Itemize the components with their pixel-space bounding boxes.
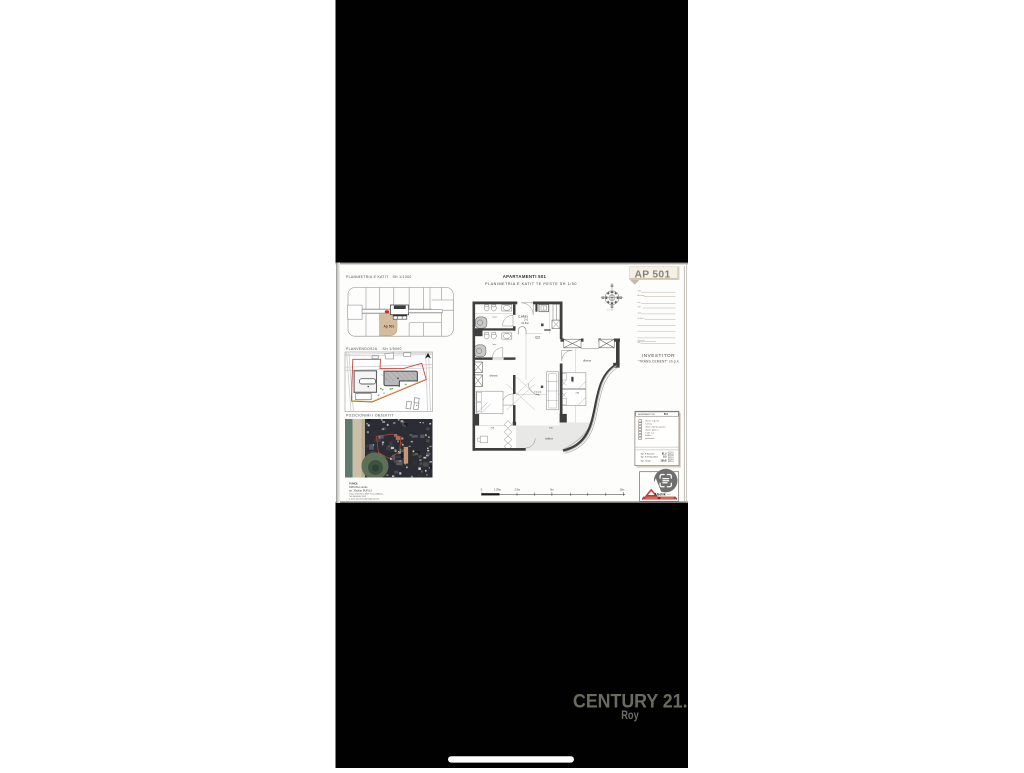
svg-text:PLANIMETRIA E KATIT TE PESTE: PLANIMETRIA E KATIT TE PESTE SH 1/50 <box>485 282 577 286</box>
svg-text:dhome ndenje+ngrenie: dhome ndenje+ngrenie <box>645 427 666 429</box>
svg-text:dhome e gjumit: dhome e gjumit <box>645 420 659 423</box>
svg-text:dhoma: dhoma <box>490 373 498 377</box>
svg-text:APARTAMENTI 501: APARTAMENTI 501 <box>503 274 547 279</box>
svg-text:Akronte:: Akronte: <box>638 294 646 297</box>
svg-text:PLANIMETRIA E KATIT SH 1/100: PLANIMETRIA E KATIT SH 1/1000 <box>346 275 412 279</box>
svg-text:ant:: ant: <box>638 341 642 344</box>
svg-text:2.5m: 2.5m <box>515 488 521 491</box>
svg-text:m2: m2 <box>669 460 671 462</box>
svg-text:PUNOI:: PUNOI: <box>349 482 358 486</box>
svg-text:5m: 5m <box>550 488 553 491</box>
svg-text:mbi:: mbi: <box>638 307 642 309</box>
svg-text:tualet 1+2: tualet 1+2 <box>645 431 655 434</box>
svg-text:Obj:: Obj: <box>638 291 642 293</box>
svg-text:Roy: Roy <box>621 710 639 722</box>
svg-text:91.5m²: 91.5m² <box>522 322 530 325</box>
svg-text:INVESTITOR: INVESTITOR <box>642 353 675 358</box>
svg-text:disp: disp <box>536 394 539 396</box>
svg-text:m2: m2 <box>669 456 671 458</box>
svg-text:garderobe: garderobe <box>645 438 655 440</box>
svg-text:arkit:: arkit: <box>638 311 643 314</box>
svg-text:Sip. E Perbashket: Sip. E Perbashket <box>641 456 659 459</box>
svg-text:m2: m2 <box>669 453 671 455</box>
svg-text:lava.: lava. <box>493 344 498 346</box>
svg-text:dhoma: dhoma <box>583 359 591 363</box>
svg-text:Abelik: Abelik <box>654 493 665 497</box>
svg-text:v e r i: v e r i <box>607 308 612 311</box>
svg-text:shpk: shpk <box>667 494 671 496</box>
svg-text:ballkon: ballkon <box>545 436 554 440</box>
svg-text:ballkon: ballkon <box>645 435 651 437</box>
svg-text:AP 501: AP 501 <box>635 269 671 280</box>
svg-text:2+1: 2+1 <box>524 319 529 322</box>
svg-text:PLANVENDOSJA SH 1/5000: PLANVENDOSJA SH 1/5000 <box>346 347 402 351</box>
svg-text:10m: 10m <box>620 488 625 491</box>
svg-text:APARTAMENTI 501: APARTAMENTI 501 <box>638 413 655 416</box>
svg-text:POZICIONIMI I OBJEKTIT: POZICIONIMI I OBJEKTIT <box>346 414 394 418</box>
svg-text:Ap 501: Ap 501 <box>384 324 395 328</box>
svg-text:St.Brbs:: St.Brbs: <box>638 317 645 320</box>
svg-text:100.8: 100.8 <box>661 460 668 463</box>
svg-text:kuzhina: kuzhina <box>645 424 653 426</box>
svg-text:Sip. E Banimit: Sip. E Banimit <box>641 452 655 455</box>
svg-text:Sip. Totale: Sip. Totale <box>641 459 652 462</box>
svg-text:1.25m: 1.25m <box>494 488 501 491</box>
svg-text:dhome gjumi 2: dhome gjumi 2 <box>645 429 659 431</box>
svg-text:lavat.: lavat. <box>493 315 498 318</box>
svg-text:Faj:: Faj: <box>638 302 642 304</box>
svg-text:e-mail: arkonastudio@gmail.com: e-mail: arkonastudio@gmail.com <box>349 497 380 500</box>
svg-text:arr. Xhulian BUFILS: arr. Xhulian BUFILS <box>349 488 372 492</box>
svg-text:"TRANS CEMENT" sh.p.k.: "TRANS CEMENT" sh.p.k. <box>638 360 680 364</box>
